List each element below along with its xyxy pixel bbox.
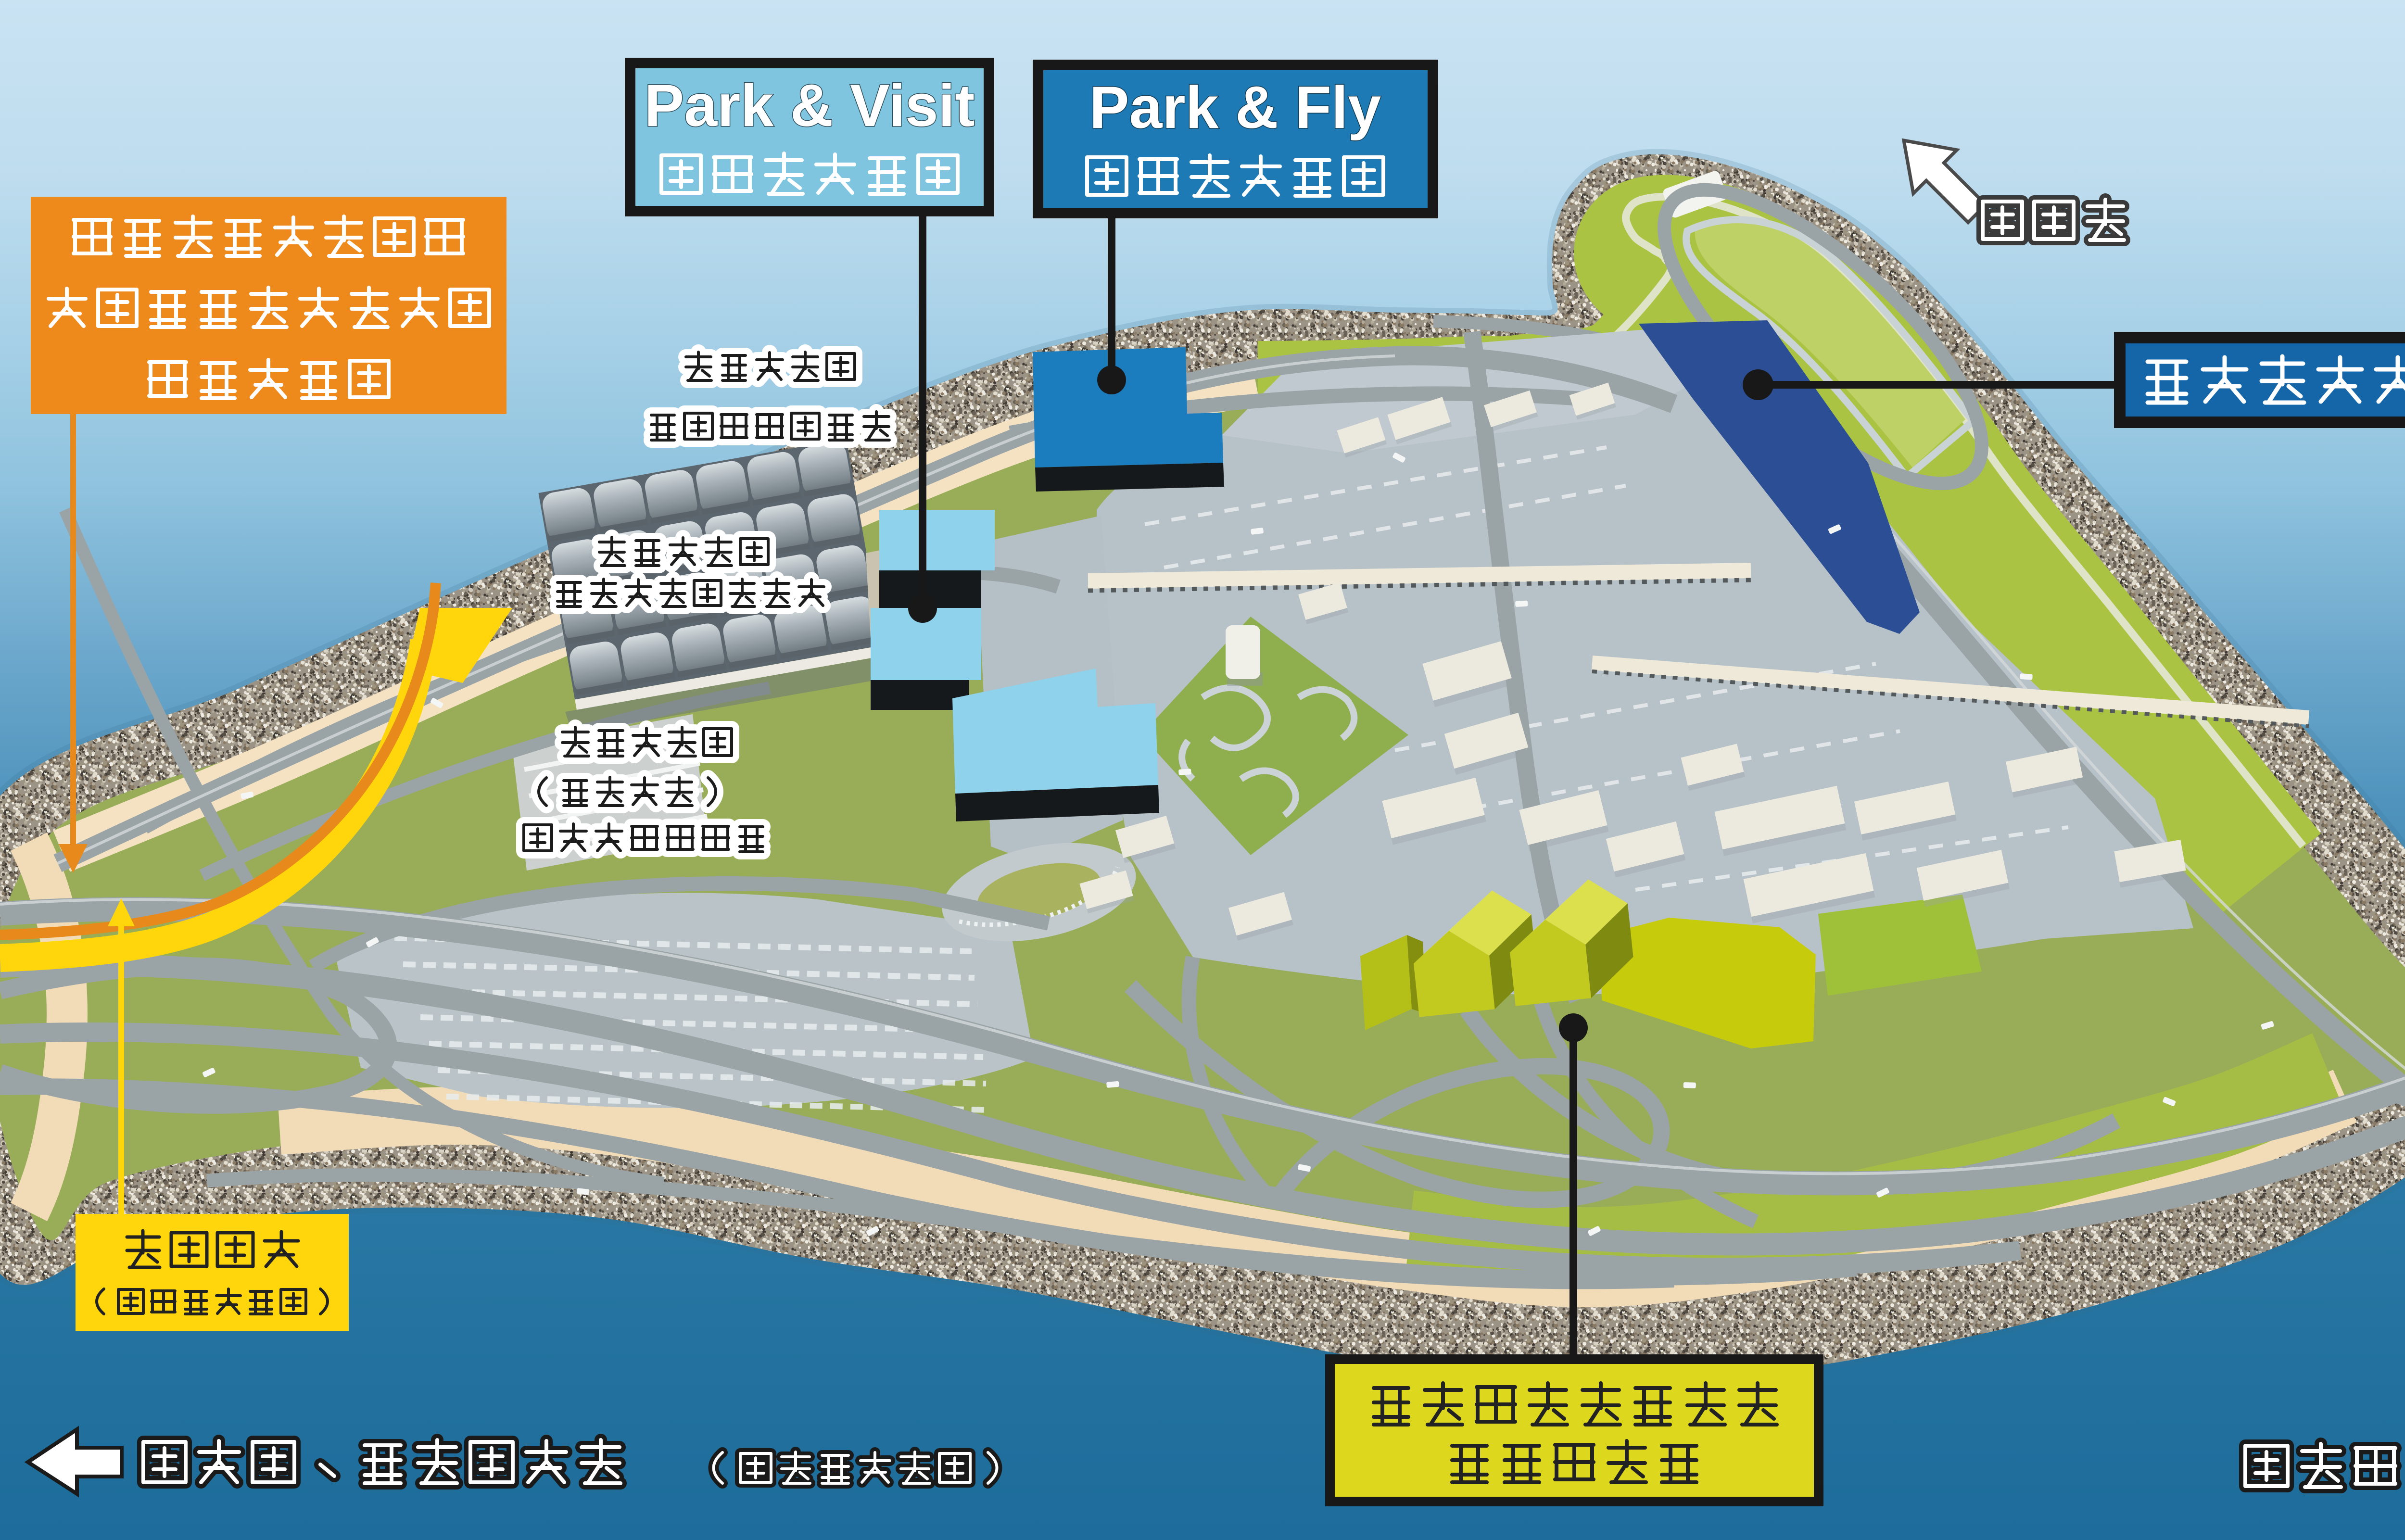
svg-text:Park & Visit: Park & Visit [645,73,975,139]
svg-text:Park & Fly: Park & Fly [1089,75,1381,141]
